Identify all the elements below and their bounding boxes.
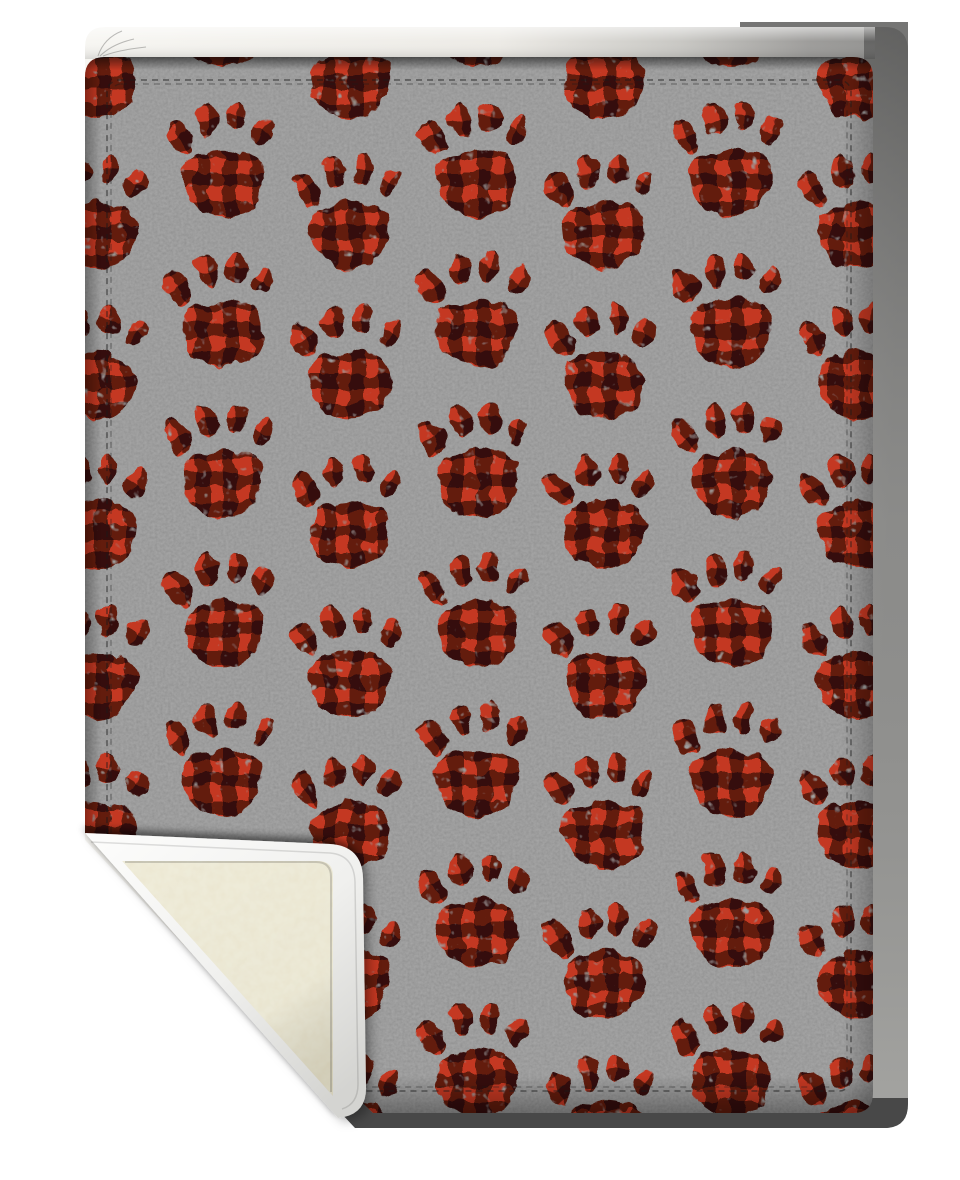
fleece-front-panel (32, 0, 913, 1169)
top-edge-fuzz (85, 57, 873, 70)
paw-print (32, 1053, 151, 1169)
bottom-edge-shading (85, 1076, 873, 1113)
paw-print (32, 903, 151, 1019)
folded-corner (85, 833, 366, 1118)
product-photo (0, 0, 960, 1180)
left-edge-shading (85, 57, 101, 1113)
blanket-mockup (0, 0, 960, 1180)
top-sherpa-band-shine (85, 27, 875, 59)
